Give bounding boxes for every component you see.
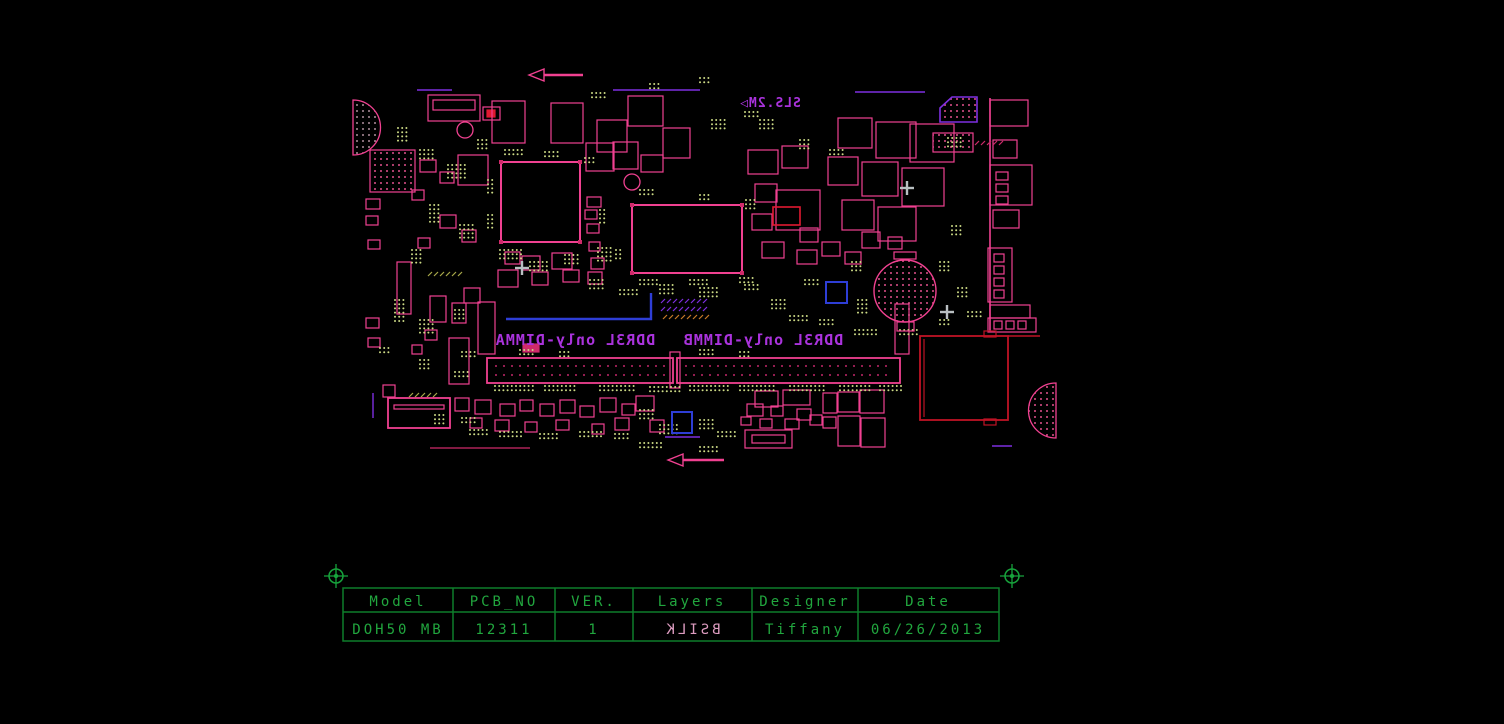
solder-dot bbox=[971, 311, 973, 313]
solder-dot bbox=[455, 164, 457, 166]
solder-dot bbox=[464, 172, 466, 174]
component-outline bbox=[556, 420, 569, 430]
solder-dot bbox=[503, 257, 505, 259]
component-outline bbox=[587, 197, 601, 207]
solder-dot bbox=[657, 386, 659, 388]
solder-dot bbox=[459, 228, 461, 230]
topright-connector-outline bbox=[940, 97, 977, 122]
solder-dot bbox=[947, 265, 949, 267]
component-outline bbox=[525, 422, 537, 432]
ic-corner-tick bbox=[630, 203, 634, 207]
solder-dot bbox=[784, 307, 786, 309]
solder-dot bbox=[883, 385, 885, 387]
solder-dot bbox=[618, 437, 620, 439]
solder-dot bbox=[605, 255, 607, 257]
solder-dot bbox=[947, 145, 949, 147]
solder-dot bbox=[572, 254, 574, 256]
pcb-assembly-drawing: SLS.2M▷ DDR3L only-DIMMA DDR3L only-DIMM… bbox=[0, 0, 1504, 724]
solder-dot bbox=[528, 385, 530, 387]
solder-dot-cluster bbox=[419, 149, 434, 159]
solder-dot bbox=[960, 137, 962, 139]
solder-dot bbox=[432, 332, 434, 334]
solder-dot bbox=[564, 254, 566, 256]
solder-dot bbox=[429, 204, 431, 206]
solder-dot bbox=[643, 442, 645, 444]
solder-dot bbox=[491, 179, 493, 181]
solder-dot bbox=[438, 418, 440, 420]
solder-dot bbox=[546, 269, 548, 271]
solder-dot bbox=[812, 283, 814, 285]
solder-dot-cluster bbox=[689, 385, 729, 391]
solder-dot bbox=[739, 277, 741, 279]
solder-dot bbox=[474, 417, 476, 419]
solder-dot bbox=[599, 389, 601, 391]
solder-dot bbox=[402, 320, 404, 322]
solder-dot bbox=[714, 389, 716, 391]
solder-dot bbox=[463, 237, 465, 239]
solder-dot-cluster bbox=[499, 249, 522, 259]
solder-dot bbox=[491, 187, 493, 189]
solder-dot bbox=[965, 291, 967, 293]
solder-dot bbox=[659, 432, 661, 434]
solder-dot bbox=[947, 137, 949, 139]
solder-dot bbox=[896, 389, 898, 391]
solder-dot bbox=[818, 389, 820, 391]
hatch-marks bbox=[679, 307, 683, 311]
hatch-marks bbox=[681, 315, 685, 319]
solder-dot bbox=[397, 140, 399, 142]
solder-dot bbox=[875, 333, 877, 335]
solder-dot bbox=[725, 431, 727, 433]
solder-dot bbox=[461, 355, 463, 357]
solder-dot bbox=[543, 437, 545, 439]
titleblock-header-model: Model bbox=[369, 594, 426, 610]
solder-dot bbox=[965, 287, 967, 289]
solder-dot bbox=[752, 389, 754, 391]
solder-dot bbox=[802, 319, 804, 321]
solder-dot bbox=[857, 303, 859, 305]
solder-dot bbox=[379, 351, 381, 353]
solder-dot bbox=[383, 347, 385, 349]
solder-dot bbox=[512, 249, 514, 251]
solder-dot bbox=[647, 409, 649, 411]
solder-dot bbox=[703, 194, 705, 196]
solder-dot bbox=[660, 446, 662, 448]
solder-dot bbox=[462, 375, 464, 377]
solder-dot bbox=[499, 435, 501, 437]
hatch-marks bbox=[679, 299, 683, 303]
solder-dot-cluster bbox=[939, 319, 949, 325]
solder-dot bbox=[472, 228, 474, 230]
solder-dot bbox=[706, 279, 708, 281]
solder-dot bbox=[647, 193, 649, 195]
solder-dot bbox=[523, 353, 525, 355]
solder-dot bbox=[579, 431, 581, 433]
solder-dot bbox=[760, 389, 762, 391]
solder-dot bbox=[951, 145, 953, 147]
solder-dot bbox=[599, 209, 601, 211]
titleblock-header-layers: Layers bbox=[658, 594, 727, 610]
solder-dot bbox=[748, 288, 750, 290]
solder-dot bbox=[552, 437, 554, 439]
solder-dot-cluster bbox=[504, 149, 523, 155]
solder-dot bbox=[649, 83, 651, 85]
solder-dot bbox=[520, 249, 522, 251]
solder-dot bbox=[879, 385, 881, 387]
solder-dot bbox=[652, 442, 654, 444]
solder-dot bbox=[842, 149, 844, 151]
solder-dot bbox=[622, 433, 624, 435]
solder-dot bbox=[636, 293, 638, 295]
solder-dot-cluster bbox=[839, 385, 870, 391]
solder-dot bbox=[607, 385, 609, 387]
solder-dot bbox=[703, 291, 705, 293]
solder-dot bbox=[477, 147, 479, 149]
hatch-marks bbox=[458, 272, 462, 276]
solder-dot bbox=[627, 293, 629, 295]
solder-dot bbox=[383, 351, 385, 353]
solder-dot bbox=[744, 111, 746, 113]
solder-dot bbox=[706, 283, 708, 285]
solder-dot bbox=[689, 279, 691, 281]
solder-dot bbox=[799, 147, 801, 149]
hatch-marks bbox=[667, 299, 671, 303]
solder-dot bbox=[663, 424, 665, 426]
component-outline bbox=[888, 237, 902, 249]
solder-dot bbox=[499, 253, 501, 255]
component-outline bbox=[622, 404, 635, 415]
solder-dot bbox=[799, 143, 801, 145]
solder-dot bbox=[659, 424, 661, 426]
solder-dot bbox=[859, 269, 861, 271]
solder-dot-cluster bbox=[614, 433, 629, 439]
solder-dot bbox=[469, 355, 471, 357]
solder-dot bbox=[469, 421, 471, 423]
solder-dot bbox=[703, 450, 705, 452]
hatch-marks bbox=[663, 315, 667, 319]
solder-dot bbox=[577, 262, 579, 264]
solder-dot bbox=[432, 149, 434, 151]
hatch-marks bbox=[673, 307, 677, 311]
solder-dot bbox=[804, 283, 806, 285]
solder-dot bbox=[745, 199, 747, 201]
solder-dot bbox=[567, 351, 569, 353]
component-outline bbox=[587, 224, 599, 233]
solder-dot bbox=[533, 265, 535, 267]
solder-dot bbox=[693, 283, 695, 285]
solder-dot bbox=[662, 390, 664, 392]
hatch-marks bbox=[434, 272, 438, 276]
solder-dot bbox=[666, 390, 668, 392]
component-outline bbox=[861, 418, 885, 447]
solder-dot bbox=[398, 303, 400, 305]
solder-dot bbox=[789, 385, 791, 387]
solder-dot bbox=[593, 279, 595, 281]
solder-dot bbox=[639, 193, 641, 195]
solder-dot bbox=[752, 288, 754, 290]
hatch-marks bbox=[697, 307, 701, 311]
solder-dot bbox=[462, 309, 464, 311]
solder-dot bbox=[653, 386, 655, 388]
solder-dot bbox=[537, 269, 539, 271]
solder-dot bbox=[569, 389, 571, 391]
component-outline bbox=[663, 128, 690, 158]
solder-dot bbox=[647, 413, 649, 415]
solder-dot bbox=[757, 115, 759, 117]
solder-dot bbox=[734, 431, 736, 433]
solder-dot bbox=[724, 127, 726, 129]
solder-dot bbox=[597, 283, 599, 285]
solder-dot bbox=[719, 119, 721, 121]
solder-dot bbox=[955, 233, 957, 235]
solder-dot bbox=[419, 257, 421, 259]
solder-dot bbox=[647, 283, 649, 285]
solder-dot bbox=[657, 390, 659, 392]
component-outline bbox=[632, 205, 742, 273]
solder-dot bbox=[521, 149, 523, 151]
solder-dot bbox=[672, 288, 674, 290]
solder-dot-cluster bbox=[454, 309, 464, 319]
solder-dot bbox=[427, 157, 429, 159]
solder-dot bbox=[804, 279, 806, 281]
solder-dot bbox=[667, 424, 669, 426]
solder-dot bbox=[900, 389, 902, 391]
solder-dot bbox=[454, 375, 456, 377]
solder-dot bbox=[707, 446, 709, 448]
solder-dot bbox=[943, 323, 945, 325]
solder-dot bbox=[656, 442, 658, 444]
solder-dot bbox=[419, 153, 421, 155]
solder-dot bbox=[703, 198, 705, 200]
solder-dot bbox=[610, 260, 612, 262]
solder-dot bbox=[752, 385, 754, 387]
solder-dot bbox=[503, 249, 505, 251]
solder-dot bbox=[627, 437, 629, 439]
solder-dot bbox=[843, 389, 845, 391]
hatch-marks bbox=[685, 307, 689, 311]
solder-dot bbox=[939, 319, 941, 321]
solder-dot bbox=[703, 427, 705, 429]
solder-dot bbox=[411, 253, 413, 255]
solder-dot bbox=[491, 218, 493, 220]
solder-dot-cluster bbox=[459, 224, 474, 239]
solder-dot bbox=[727, 389, 729, 391]
solder-dot-cluster bbox=[564, 254, 579, 264]
solder-dot bbox=[423, 367, 425, 369]
solder-dot bbox=[588, 157, 590, 159]
solder-dot bbox=[465, 355, 467, 357]
solder-dot bbox=[676, 428, 678, 430]
solder-dot bbox=[458, 309, 460, 311]
solder-dot bbox=[627, 433, 629, 435]
solder-dot bbox=[867, 329, 869, 331]
solder-dot bbox=[803, 139, 805, 141]
solder-dot bbox=[568, 254, 570, 256]
solder-dot bbox=[772, 119, 774, 121]
component-outline bbox=[760, 419, 772, 428]
solder-dot bbox=[467, 371, 469, 373]
solder-dot bbox=[712, 446, 714, 448]
solder-dot bbox=[461, 351, 463, 353]
solder-dot bbox=[871, 333, 873, 335]
titleblock-header-ver: VER. bbox=[571, 594, 617, 610]
solder-dot bbox=[851, 261, 853, 263]
hatch-marks bbox=[687, 315, 691, 319]
solder-dot bbox=[462, 371, 464, 373]
solder-dot bbox=[507, 249, 509, 251]
solder-dot bbox=[647, 417, 649, 419]
solder-dot bbox=[827, 323, 829, 325]
solder-dot bbox=[883, 389, 885, 391]
solder-dot bbox=[577, 254, 579, 256]
orientation-arrow-top bbox=[529, 69, 583, 81]
solder-dot-cluster bbox=[799, 139, 809, 149]
component-outline bbox=[741, 417, 751, 425]
solder-dot bbox=[442, 414, 444, 416]
solder-dot bbox=[672, 292, 674, 294]
solder-dot bbox=[477, 143, 479, 145]
dimm-socket-a bbox=[487, 358, 673, 383]
solder-dot bbox=[612, 389, 614, 391]
solder-dot bbox=[552, 151, 554, 153]
solder-dot bbox=[817, 283, 819, 285]
solder-dot bbox=[461, 417, 463, 419]
component-outline bbox=[752, 214, 772, 230]
solder-dot bbox=[508, 153, 510, 155]
solder-dot bbox=[965, 295, 967, 297]
solder-dot bbox=[427, 153, 429, 155]
solder-dot bbox=[772, 127, 774, 129]
component-outline bbox=[478, 302, 495, 354]
hatch-marks bbox=[440, 272, 444, 276]
silkscreen-dimm-a-label: DDR3L only-DIMMA bbox=[495, 331, 656, 349]
solder-dot bbox=[716, 287, 718, 289]
solder-dot bbox=[499, 257, 501, 259]
solder-dot bbox=[429, 208, 431, 210]
solder-dot-cluster bbox=[649, 386, 680, 392]
solder-dot bbox=[516, 257, 518, 259]
solder-dot bbox=[482, 433, 484, 435]
solder-dot bbox=[415, 257, 417, 259]
solder-dot bbox=[557, 389, 559, 391]
solder-dot-cluster bbox=[454, 371, 469, 377]
solder-dot bbox=[652, 446, 654, 448]
component-outline bbox=[430, 296, 446, 322]
solder-dot bbox=[715, 119, 717, 121]
solder-dot bbox=[599, 92, 601, 94]
component-outline bbox=[420, 160, 436, 172]
solder-dot bbox=[602, 287, 604, 289]
solder-dot bbox=[597, 255, 599, 257]
solder-dot bbox=[643, 446, 645, 448]
solder-dot bbox=[527, 353, 529, 355]
solder-dot bbox=[667, 428, 669, 430]
solder-dot bbox=[419, 363, 421, 365]
solder-dot bbox=[469, 417, 471, 419]
solder-dot bbox=[947, 261, 949, 263]
solder-dot bbox=[808, 283, 810, 285]
solder-dot bbox=[512, 149, 514, 151]
solder-dot bbox=[610, 255, 612, 257]
solder-dot-cluster bbox=[699, 349, 714, 355]
solder-dot bbox=[659, 288, 661, 290]
solder-dot-cluster bbox=[744, 111, 759, 117]
solder-dot bbox=[455, 172, 457, 174]
solder-dot bbox=[507, 253, 509, 255]
solder-dot bbox=[615, 257, 617, 259]
solder-dot bbox=[547, 433, 549, 435]
solder-dot bbox=[520, 253, 522, 255]
solder-dot bbox=[485, 139, 487, 141]
solder-dot bbox=[875, 329, 877, 331]
solder-dot bbox=[739, 281, 741, 283]
solder-dot bbox=[807, 147, 809, 149]
solder-dot bbox=[427, 332, 429, 334]
solder-dot bbox=[579, 435, 581, 437]
solder-dot bbox=[779, 303, 781, 305]
solder-dot-cluster bbox=[851, 261, 861, 271]
solder-dot bbox=[564, 262, 566, 264]
solder-dot bbox=[548, 155, 550, 157]
solder-dot bbox=[487, 218, 489, 220]
solder-dot bbox=[865, 307, 867, 309]
solder-dot bbox=[943, 265, 945, 267]
solder-dot bbox=[454, 313, 456, 315]
solder-dot bbox=[707, 450, 709, 452]
solder-dot bbox=[539, 437, 541, 439]
solder-dot bbox=[947, 269, 949, 271]
solder-dot-cluster bbox=[819, 319, 834, 325]
component-outline bbox=[520, 400, 533, 411]
solder-dot bbox=[807, 143, 809, 145]
solder-dot-cluster bbox=[411, 249, 421, 264]
solder-dot bbox=[419, 149, 421, 151]
solder-dot bbox=[797, 389, 799, 391]
solder-dot bbox=[619, 289, 621, 291]
solder-dot bbox=[779, 299, 781, 301]
solder-dot bbox=[599, 222, 601, 224]
solder-dot bbox=[546, 261, 548, 263]
solder-dot bbox=[595, 96, 597, 98]
solder-dot bbox=[947, 323, 949, 325]
solder-dot bbox=[397, 131, 399, 133]
solder-dot bbox=[482, 429, 484, 431]
solder-dot bbox=[599, 217, 601, 219]
solder-dot bbox=[859, 265, 861, 267]
solder-dot bbox=[703, 81, 705, 83]
solder-dot bbox=[747, 281, 749, 283]
solder-dot bbox=[802, 385, 804, 387]
solder-dot bbox=[487, 179, 489, 181]
solder-dot bbox=[663, 432, 665, 434]
solder-dot bbox=[857, 299, 859, 301]
solder-dot bbox=[703, 77, 705, 79]
solder-dot bbox=[951, 141, 953, 143]
solder-dot bbox=[503, 431, 505, 433]
solder-dot-cluster bbox=[615, 249, 621, 259]
solder-dot bbox=[857, 307, 859, 309]
solder-dot bbox=[434, 418, 436, 420]
solder-dot bbox=[767, 119, 769, 121]
component-outline bbox=[628, 96, 663, 126]
solder-dot bbox=[725, 435, 727, 437]
solder-dot bbox=[491, 214, 493, 216]
solder-dot bbox=[544, 385, 546, 387]
solder-dot bbox=[481, 139, 483, 141]
solder-dot bbox=[678, 386, 680, 388]
solder-dot bbox=[487, 214, 489, 216]
solder-dot bbox=[487, 222, 489, 224]
